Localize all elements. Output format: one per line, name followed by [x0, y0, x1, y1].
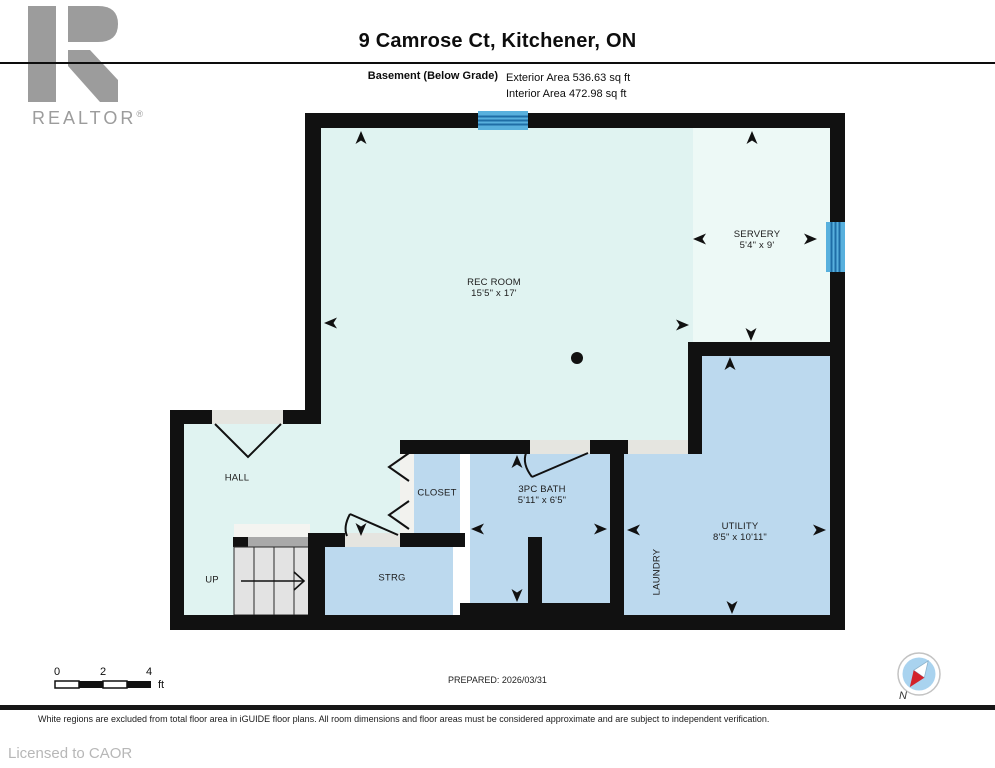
- header-divider: [0, 62, 995, 64]
- room-label-storage: STRG: [378, 573, 405, 584]
- floor-plan-drawing: [0, 0, 995, 768]
- room-label-closet: CLOSET: [417, 488, 456, 499]
- room-label-stairs-up: UP: [205, 575, 219, 586]
- room-label-servery: SERVERY5'4" x 9': [734, 229, 780, 251]
- realtor-logo-text: REALTOR®: [32, 108, 143, 129]
- compass-north-label: N: [899, 690, 907, 702]
- disclaimer-text: White regions are excluded from total fl…: [38, 714, 968, 724]
- room-label-bath: 3PC BATH5'11" x 6'5": [518, 484, 567, 506]
- room-label-hall: HALL: [225, 473, 250, 484]
- realtor-logo-icon: REALTOR®: [28, 6, 118, 102]
- floor-plan-page: REALTOR® 9 Camrose Ct, Kitchener, ON Bas…: [0, 0, 995, 768]
- room-label-laundry: LAUNDRY: [652, 549, 663, 596]
- room-label-rec-room: REC ROOM15'5" x 17': [467, 277, 521, 299]
- license-text: Licensed to CAOR: [8, 745, 132, 762]
- footer-divider: [0, 705, 995, 710]
- camera-point-icon: [571, 352, 583, 364]
- realtor-block-r-icon: [28, 6, 118, 102]
- room-label-utility: UTILITY8'5" x 10'11": [713, 521, 767, 543]
- prepared-date: PREPARED: 2026/03/31: [0, 675, 995, 685]
- stairs-icon: [233, 524, 310, 615]
